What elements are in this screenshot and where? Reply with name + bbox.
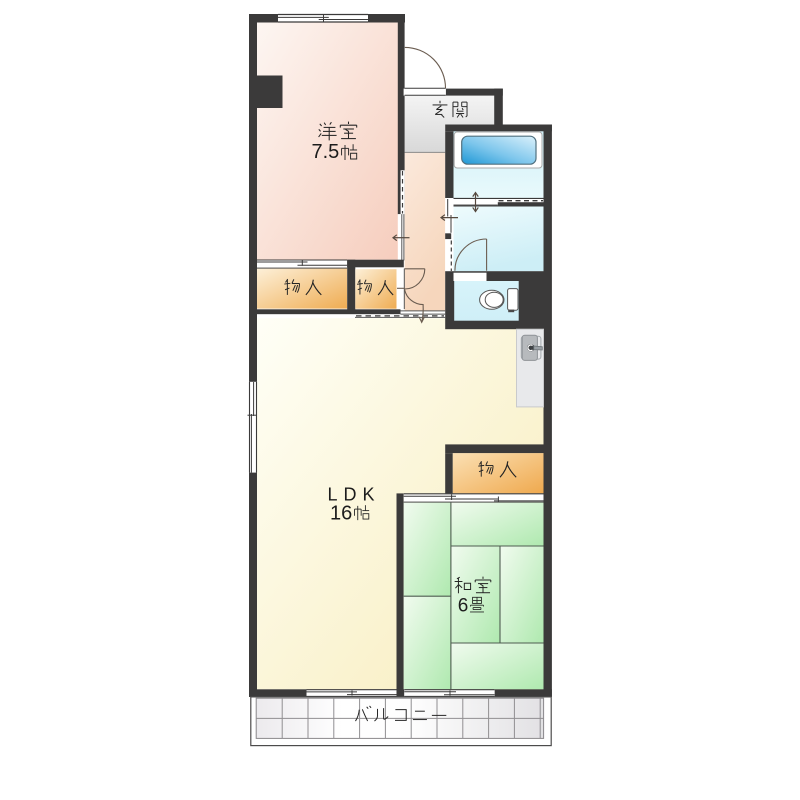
svg-text:7.5: 7.5 (312, 141, 340, 163)
svg-text:6: 6 (458, 596, 469, 617)
svg-text:16: 16 (330, 502, 352, 524)
